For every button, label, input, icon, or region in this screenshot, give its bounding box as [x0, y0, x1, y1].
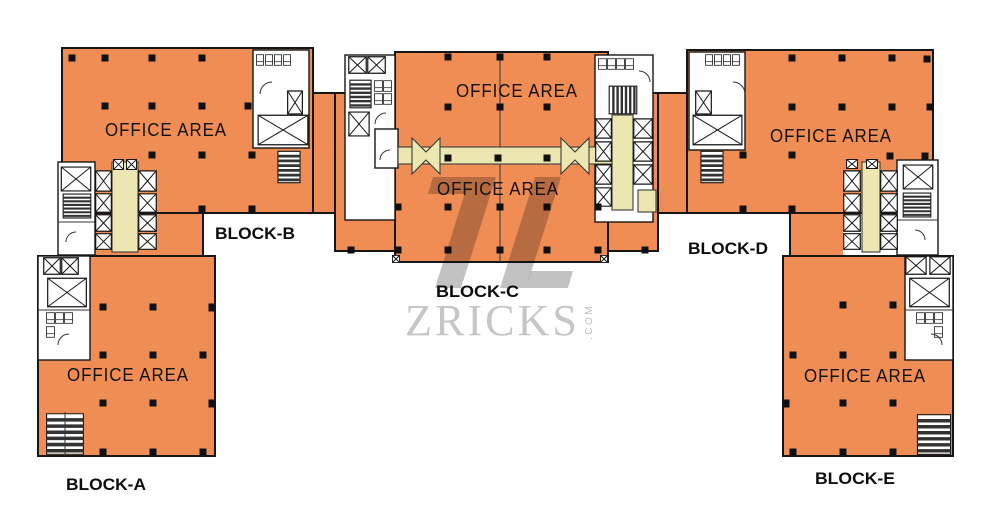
column-marker	[544, 54, 551, 61]
office-area-label-a: OFFICE AREA	[67, 365, 189, 385]
column-marker	[200, 449, 207, 456]
column-marker	[100, 449, 107, 456]
column-marker	[395, 247, 402, 254]
column-marker	[199, 103, 206, 110]
wc-fixture-icon	[375, 81, 383, 92]
floor-plan-page: ZRICKS .COM OFFICE AREA OFFICE AREA OFFI…	[0, 0, 1000, 525]
office-wings	[38, 48, 953, 456]
column-marker	[102, 55, 109, 62]
column-marker	[445, 104, 452, 111]
elevator-door-icon	[113, 159, 123, 169]
column-marker	[497, 54, 504, 61]
block-a-label: BLOCK-A	[66, 475, 146, 494]
column-marker	[789, 206, 796, 213]
column-marker	[149, 152, 156, 159]
floor-plan-canvas: ZRICKS .COM OFFICE AREA OFFICE AREA OFFI…	[0, 0, 1000, 525]
column-marker	[102, 103, 109, 110]
elevator-shaft-icon	[881, 234, 898, 250]
stairs-icon	[917, 415, 950, 455]
column-marker	[595, 204, 602, 211]
elevator-shaft-icon	[903, 165, 932, 189]
wc-fixture-icon	[256, 55, 263, 66]
column-marker	[924, 56, 931, 63]
elevator-door-icon	[866, 159, 877, 168]
column-marker	[889, 104, 896, 111]
column-marker	[890, 400, 897, 407]
wc-fixture-icon	[384, 81, 392, 92]
column-marker	[495, 155, 502, 162]
corner-marker-icon	[600, 255, 607, 262]
column-marker	[445, 204, 452, 211]
elevator-shaft-icon	[139, 171, 156, 191]
column-marker	[199, 206, 206, 213]
column-marker	[149, 103, 156, 110]
column-marker	[544, 247, 551, 254]
elevator-shaft-icon	[96, 194, 112, 212]
elevator-shaft-icon	[881, 171, 898, 191]
office-area-label-c-top: OFFICE AREA	[456, 81, 578, 101]
elevator-shaft-icon	[288, 91, 303, 114]
wc-fixture-icon	[935, 313, 943, 324]
wc-fixture-icon	[608, 59, 616, 70]
watermark-z-cap-bottom	[526, 271, 573, 288]
elevator-shaft-icon	[930, 257, 950, 274]
wc-fixture-icon	[56, 313, 64, 324]
column-marker	[840, 352, 847, 359]
elevator-shaft-icon	[906, 257, 926, 274]
column-marker	[790, 352, 797, 359]
wc-fixture-icon	[384, 94, 392, 105]
stairs-icon	[609, 86, 637, 114]
office-area-label-c-bottom: OFFICE AREA	[437, 179, 559, 199]
column-marker	[348, 247, 355, 254]
wc-fixture-icon	[47, 327, 55, 338]
elevator-shaft-icon	[844, 194, 861, 212]
column-marker	[199, 152, 206, 159]
elevator-shaft-icon	[634, 119, 652, 138]
stairs-icon	[903, 193, 931, 217]
elevator-door-icon	[846, 159, 857, 168]
wc-fixture-icon	[935, 327, 943, 338]
column-marker	[839, 55, 846, 62]
column-marker	[544, 104, 551, 111]
column-marker	[209, 400, 215, 408]
column-marker	[150, 304, 157, 311]
column-marker	[789, 55, 796, 62]
column-marker	[890, 449, 897, 456]
column-marker	[245, 103, 252, 110]
ahu-room-icon	[48, 278, 87, 307]
column-marker	[840, 400, 847, 407]
block-c-lift-lobby	[612, 115, 633, 210]
office-area-label-b: OFFICE AREA	[105, 120, 227, 140]
column-marker	[544, 155, 551, 162]
elevator-shaft-icon	[139, 234, 156, 250]
wc-fixture-icon	[375, 94, 383, 105]
column-marker	[249, 152, 256, 159]
block-c-label: BLOCK-C	[436, 282, 519, 301]
column-marker	[150, 400, 157, 407]
watermark-suffix-text: .COM	[584, 304, 595, 340]
elevator-shaft-icon	[139, 194, 156, 212]
column-marker	[209, 304, 215, 312]
stairs-icon	[63, 194, 91, 218]
column-marker	[149, 55, 156, 62]
elevator-shaft-icon	[881, 194, 898, 212]
block-c-lobby-room	[638, 190, 656, 212]
column-marker	[887, 153, 894, 160]
wing-d-e-connector	[790, 213, 843, 257]
wc-fixture-icon	[917, 313, 925, 324]
wc-fixture-icon	[714, 55, 721, 66]
office-area-label-e: OFFICE AREA	[804, 366, 926, 386]
elevator-shaft-icon	[61, 167, 90, 191]
stairs-icon	[350, 80, 371, 108]
block-e-label: BLOCK-E	[815, 469, 895, 488]
block-d-label: BLOCK-D	[688, 239, 768, 258]
elevator-shaft-icon	[634, 142, 652, 161]
column-marker	[445, 54, 452, 61]
column-marker	[249, 206, 256, 213]
elevator-shaft-icon	[596, 119, 612, 138]
corner-marker-icon	[392, 255, 399, 262]
elevator-shaft-icon	[44, 258, 61, 275]
column-marker	[150, 352, 157, 359]
column-marker	[150, 449, 157, 456]
column-marker	[740, 206, 747, 213]
column-marker	[789, 104, 796, 111]
wc-fixture-icon	[626, 59, 634, 70]
left-lift-lobby	[112, 162, 138, 252]
elevator-shaft-icon	[96, 234, 112, 250]
wc-fixture-icon	[732, 55, 739, 66]
column-marker	[840, 302, 847, 309]
office-area-label-d: OFFICE AREA	[770, 126, 892, 146]
block-b-label: BLOCK-B	[215, 224, 295, 243]
column-marker	[497, 247, 504, 254]
ahu-room-icon	[693, 115, 742, 144]
ahu-room-icon	[258, 115, 308, 144]
wc-fixture-icon	[265, 55, 272, 66]
column-marker	[100, 352, 107, 359]
elevator-shaft-icon	[139, 215, 156, 232]
column-marker	[927, 104, 934, 111]
corridor-ante-room	[375, 129, 398, 168]
elevator-shaft-icon	[62, 258, 79, 275]
elevator-shaft-icon	[368, 57, 385, 74]
column-marker	[890, 302, 897, 309]
elevator-shaft-icon	[844, 171, 861, 191]
elevator-shaft-icon	[844, 234, 861, 250]
elevator-shaft-icon	[596, 142, 612, 161]
elevator-shaft-icon	[596, 188, 612, 206]
column-marker	[840, 449, 847, 456]
right-lift-lobby	[862, 162, 880, 252]
elevator-shaft-icon	[349, 57, 366, 74]
column-marker	[445, 155, 452, 162]
wc-fixture-icon	[47, 313, 55, 324]
elevator-shaft-icon	[349, 112, 369, 136]
column-marker	[889, 55, 896, 62]
elevator-shaft-icon	[596, 165, 612, 184]
column-marker	[789, 152, 796, 159]
column-marker	[784, 400, 790, 408]
elevator-shaft-icon	[696, 91, 712, 114]
column-marker	[100, 400, 107, 407]
elevator-shaft-icon	[881, 215, 898, 232]
column-marker	[595, 247, 602, 254]
column-marker	[642, 247, 649, 254]
column-marker	[69, 55, 76, 62]
column-marker	[740, 152, 747, 159]
wc-fixture-icon	[723, 55, 730, 66]
column-marker	[890, 352, 897, 359]
ahu-room-icon	[910, 278, 950, 307]
column-marker	[497, 204, 504, 211]
column-marker	[200, 352, 207, 359]
elevator-shaft-icon	[96, 171, 112, 191]
wc-fixture-icon	[274, 55, 281, 66]
elevator-shaft-icon	[96, 215, 112, 232]
wc-fixture-icon	[599, 59, 607, 70]
column-marker	[497, 104, 504, 111]
column-marker	[395, 204, 402, 211]
elevator-door-icon	[126, 159, 136, 169]
stairs-icon	[701, 151, 723, 182]
column-marker	[790, 449, 797, 456]
wc-fixture-icon	[926, 313, 934, 324]
column-marker	[922, 153, 929, 160]
column-marker	[100, 304, 107, 311]
elevator-shaft-icon	[634, 165, 652, 184]
wc-fixture-icon	[705, 55, 712, 66]
elevator-shaft-icon	[844, 215, 861, 232]
watermark-brand-text: ZRICKS	[405, 296, 580, 345]
column-marker	[839, 104, 846, 111]
wc-fixture-icon	[283, 55, 290, 66]
column-marker	[199, 55, 206, 62]
wc-fixture-icon	[617, 59, 625, 70]
wc-fixture-icon	[65, 313, 73, 324]
stairs-icon	[278, 151, 300, 182]
